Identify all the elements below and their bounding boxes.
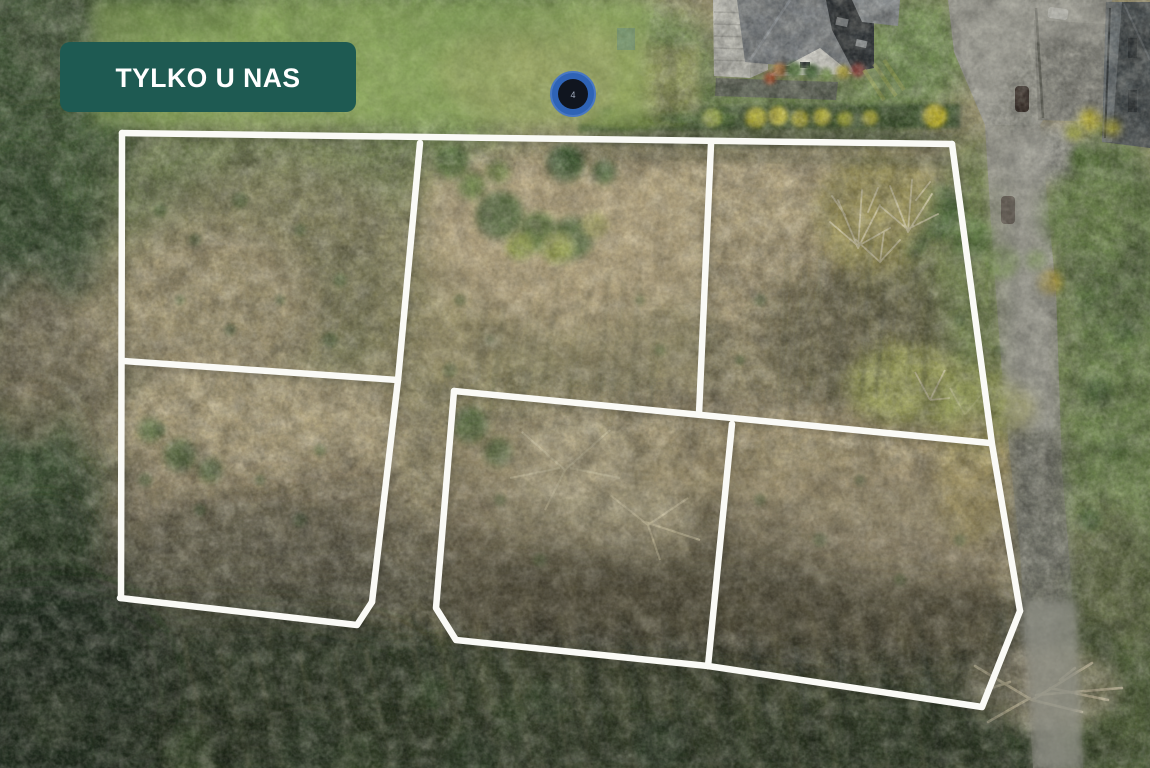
- svg-text:4: 4: [570, 90, 575, 100]
- svg-text:TYLKO U NAS: TYLKO U NAS: [115, 63, 300, 93]
